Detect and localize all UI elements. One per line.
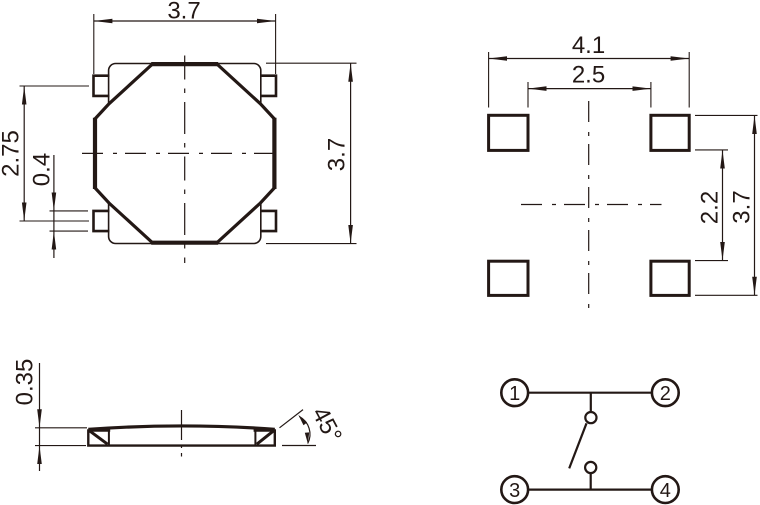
svg-text:3.7: 3.7 bbox=[324, 138, 351, 171]
svg-text:2.5: 2.5 bbox=[572, 62, 605, 89]
svg-text:1: 1 bbox=[509, 383, 520, 405]
svg-text:2: 2 bbox=[660, 383, 671, 405]
svg-text:45°: 45° bbox=[306, 403, 347, 448]
svg-text:3.7: 3.7 bbox=[167, 0, 200, 24]
svg-text:2.2: 2.2 bbox=[697, 191, 724, 224]
svg-text:2.75: 2.75 bbox=[0, 130, 25, 177]
svg-text:4.1: 4.1 bbox=[572, 32, 605, 59]
svg-text:0.4: 0.4 bbox=[29, 153, 56, 186]
svg-text:3: 3 bbox=[509, 480, 520, 502]
svg-text:4: 4 bbox=[660, 480, 671, 502]
svg-text:0.35: 0.35 bbox=[12, 359, 39, 406]
svg-text:3.7: 3.7 bbox=[729, 190, 756, 223]
